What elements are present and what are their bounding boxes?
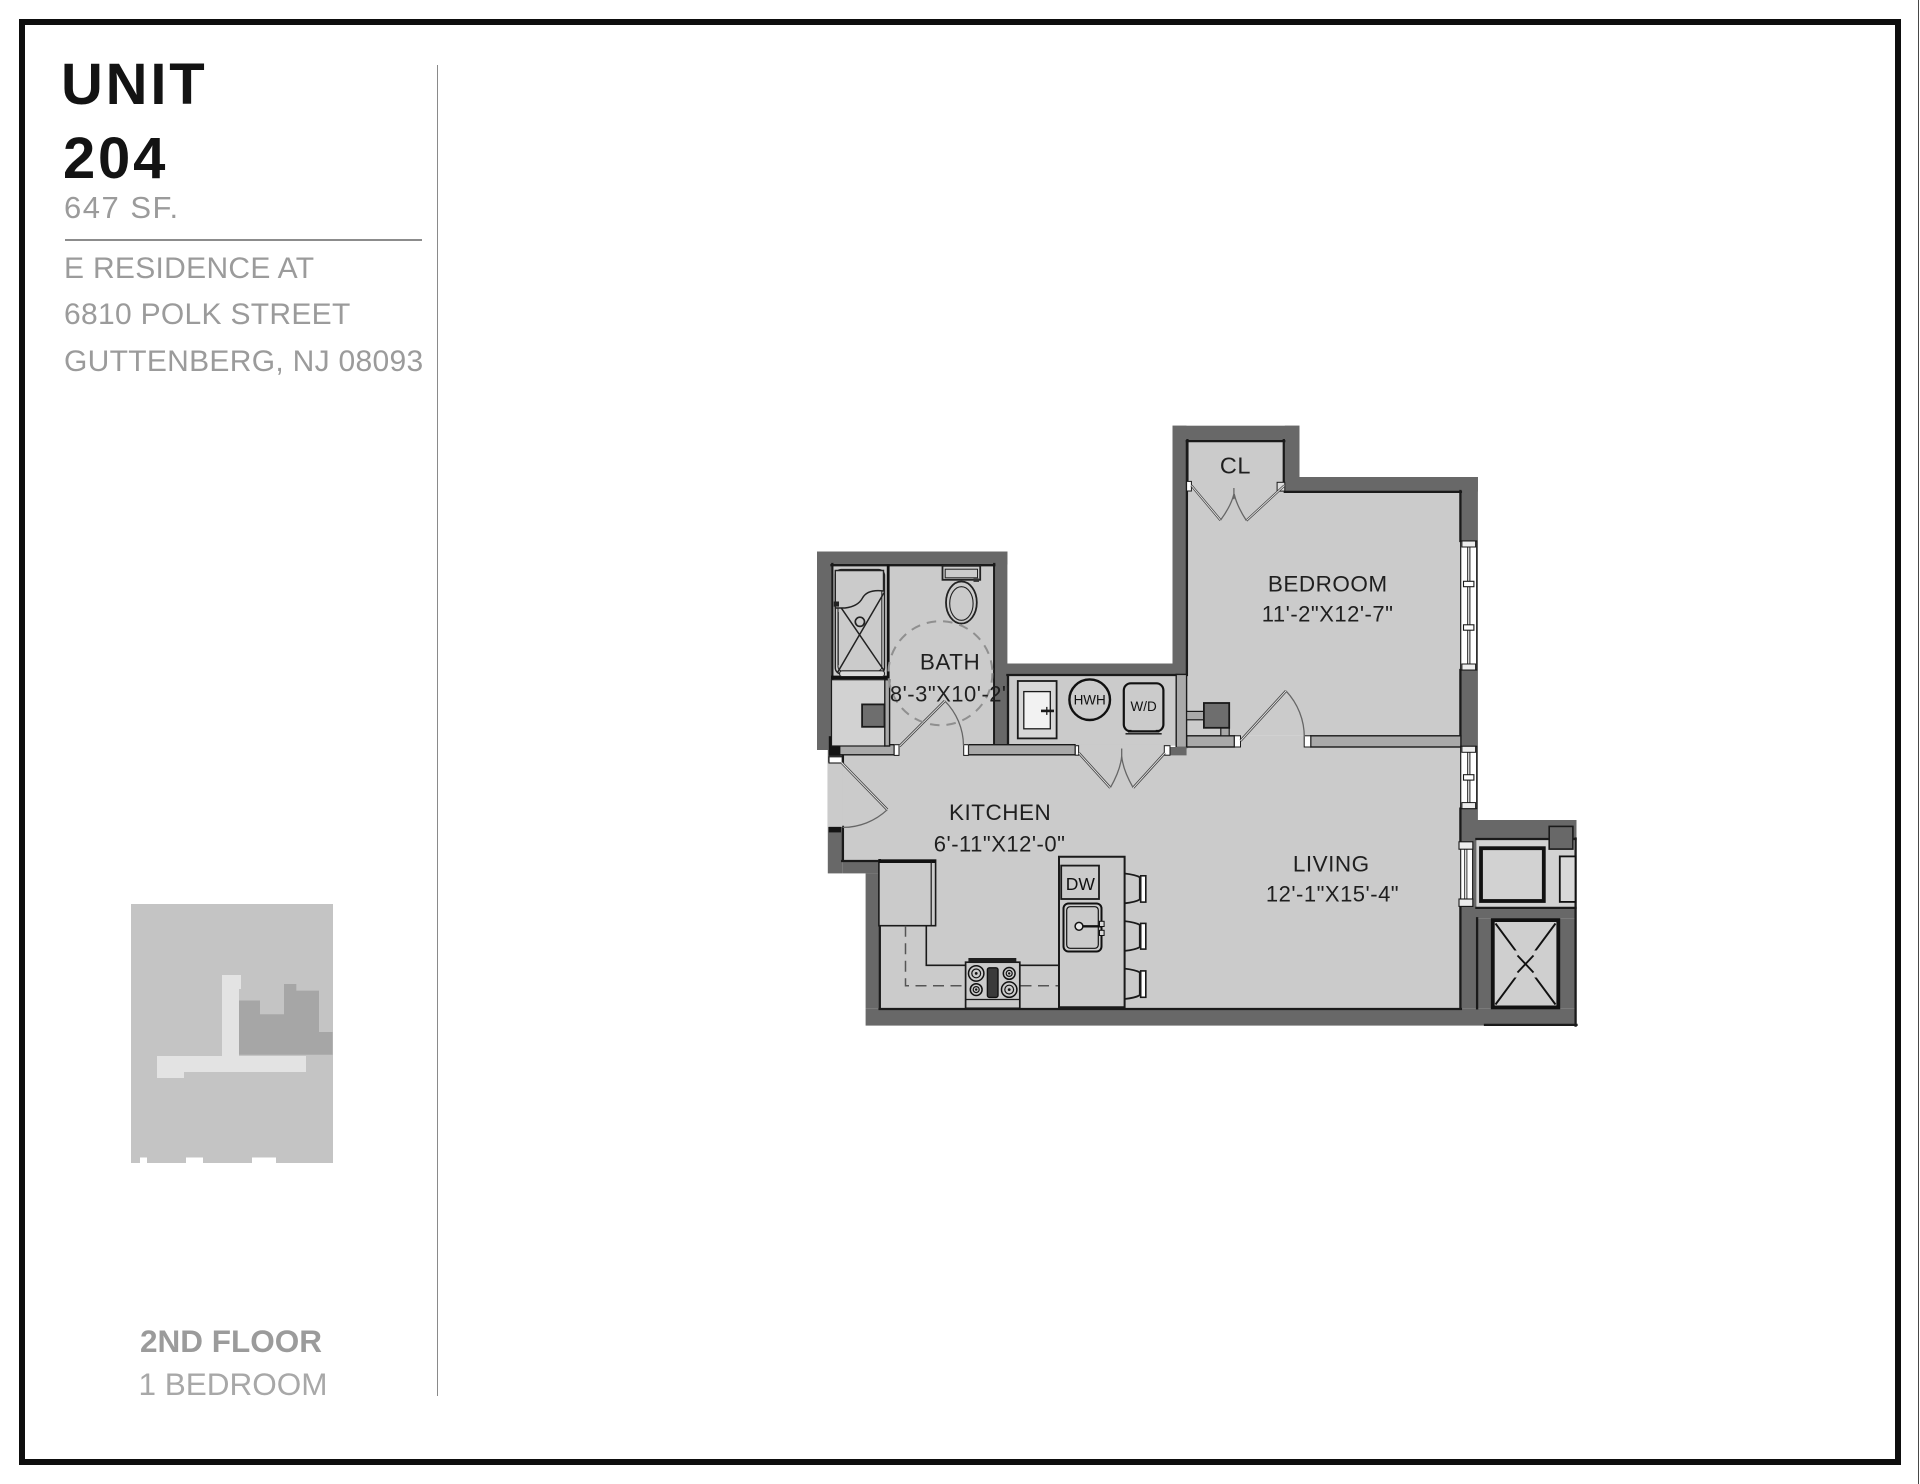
svg-text:BATH: BATH [920,650,980,675]
svg-text:12'-1"X15'-4": 12'-1"X15'-4" [1266,882,1399,907]
svg-text:HWH: HWH [1074,693,1106,708]
svg-text:KITCHEN: KITCHEN [949,800,1051,825]
svg-text:LIVING: LIVING [1293,851,1370,876]
svg-text:8'-3"X10'-2": 8'-3"X10'-2" [890,682,1011,707]
svg-text:DW: DW [1066,874,1096,894]
svg-text:CL: CL [1220,452,1251,478]
svg-text:6'-11"X12'-0": 6'-11"X12'-0" [934,832,1066,857]
svg-text:BEDROOM: BEDROOM [1268,572,1388,597]
svg-text:11'-2"X12'-7": 11'-2"X12'-7" [1262,601,1394,626]
svg-text:W/D: W/D [1130,699,1156,714]
